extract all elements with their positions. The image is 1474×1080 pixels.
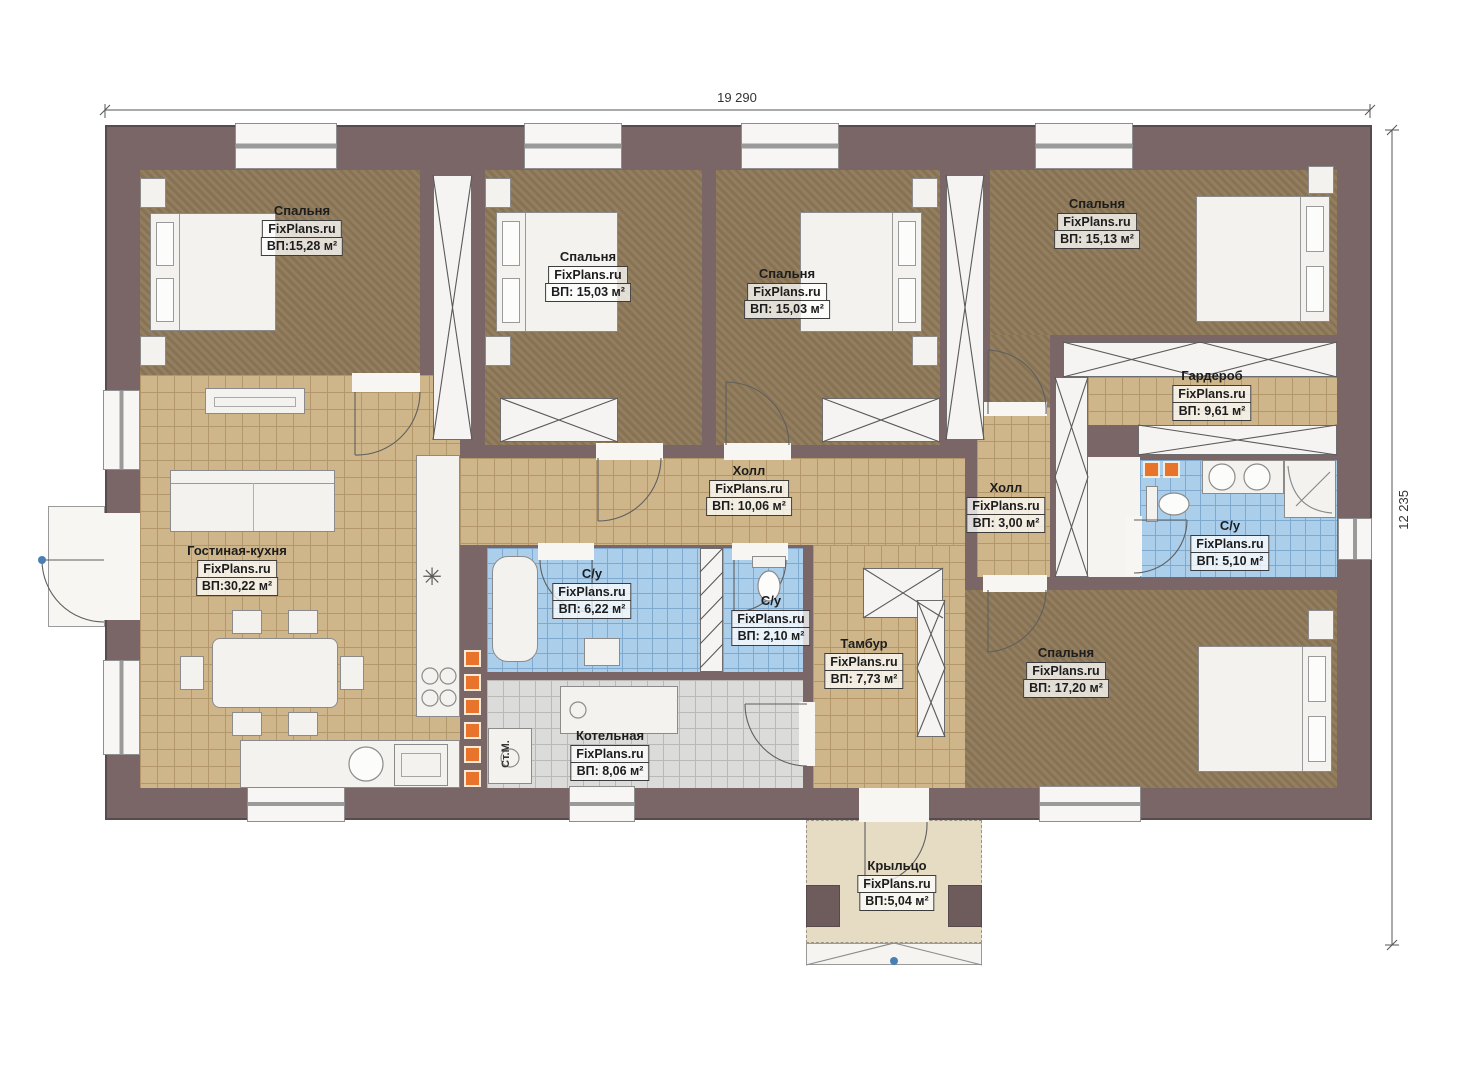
kitchen-stove — [394, 744, 448, 786]
window-top-1 — [235, 123, 337, 169]
watermark: FixPlans.ru — [552, 583, 631, 601]
tv-screen — [214, 397, 296, 406]
pillow — [156, 278, 174, 322]
boiler-room-door-opening — [799, 702, 815, 766]
room-area: ВП: 7,73 м² — [825, 670, 904, 688]
utility-shaft — [700, 548, 723, 672]
room-area: ВП: 17,20 м² — [1023, 679, 1109, 697]
window-left-1 — [103, 390, 140, 470]
nightstand — [140, 336, 166, 366]
room-area: ВП: 8,06 м² — [571, 762, 650, 780]
room-name: Тамбур — [824, 636, 903, 651]
double-sink-counter — [1202, 460, 1284, 494]
porch-post-right — [948, 885, 982, 927]
chair — [232, 610, 262, 634]
bathroom-main-sink — [584, 638, 620, 666]
dining-table — [212, 638, 338, 708]
pillow — [156, 222, 174, 266]
washing-machine-label: Ст.М. — [500, 740, 512, 768]
bedroom-5-door-opening — [983, 575, 1047, 592]
room-label-tambour: Тамбур FixPlans.ru ВП: 7,73 м² — [824, 636, 903, 689]
watermark: FixPlans.ru — [857, 875, 936, 893]
bed-headboard — [1300, 197, 1301, 321]
closet-between-bedroom-3-4 — [946, 175, 984, 440]
window-left-2 — [103, 660, 140, 755]
boiler-unit — [560, 686, 678, 734]
room-area: ВП:15,28 м² — [261, 237, 343, 255]
window-bottom-1 — [247, 786, 345, 822]
window-top-2 — [524, 123, 622, 169]
bedroom-1-door-opening — [352, 373, 420, 392]
nightstand — [1308, 610, 1334, 640]
window-right-1 — [1338, 518, 1372, 560]
room-name: Холл — [706, 463, 792, 478]
toilet-tank-master — [1146, 486, 1158, 522]
watermark: FixPlans.ru — [197, 560, 276, 578]
room-label-bedroom-5: Спальня FixPlans.ru ВП: 17,20 м² — [1023, 645, 1109, 698]
heated-wall-marker — [464, 770, 481, 787]
room-label-bedroom-4: Спальня FixPlans.ru ВП: 15,13 м² — [1054, 196, 1140, 249]
room-name: С/у — [1190, 518, 1269, 533]
room-name: Спальня — [1054, 196, 1140, 211]
sofa-seat-divider — [253, 483, 254, 531]
porch-steps — [806, 943, 982, 965]
bed-bedroom-5 — [1198, 646, 1332, 772]
closet-hall-small — [1055, 377, 1088, 577]
bedroom-3-door-opening — [724, 443, 791, 460]
room-area: ВП:5,04 м² — [859, 892, 934, 910]
watermark: FixPlans.ru — [570, 745, 649, 763]
room-label-bathroom-small: С/у FixPlans.ru ВП: 2,10 м² — [731, 593, 810, 646]
chair — [288, 610, 318, 634]
room-name: Гардероб — [1172, 368, 1251, 383]
bed-headboard — [525, 213, 526, 331]
nightstand — [140, 178, 166, 208]
porch-post-left — [806, 885, 840, 927]
room-name: Спальня — [744, 266, 830, 281]
nightstand — [912, 336, 938, 366]
watermark: FixPlans.ru — [1190, 535, 1269, 553]
room-area: ВП:30,22 м² — [196, 577, 278, 595]
nightstand — [485, 336, 511, 366]
pillow — [502, 278, 520, 322]
room-name: С/у — [552, 566, 631, 581]
room-label-bedroom-2: Спальня FixPlans.ru ВП: 15,03 м² — [545, 249, 631, 302]
room-area: ВП: 2,10 м² — [732, 627, 811, 645]
bed-bedroom-4 — [1196, 196, 1330, 322]
closet-tambour-strip — [917, 600, 945, 737]
side-entry-platform — [48, 506, 105, 627]
bedroom-4-door-opening — [983, 402, 1047, 416]
window-top-4 — [1035, 123, 1133, 169]
chair — [340, 656, 364, 690]
heated-wall-marker — [464, 746, 481, 763]
heated-wall-marker — [464, 698, 481, 715]
room-area: ВП: 3,00 м² — [967, 514, 1046, 532]
room-name: Спальня — [261, 203, 343, 218]
closet-bedroom-3 — [822, 398, 940, 442]
room-area: ВП: 10,06 м² — [706, 497, 792, 515]
pillow — [502, 221, 520, 265]
chair — [180, 656, 204, 690]
room-label-hall-main: Холл FixPlans.ru ВП: 10,06 м² — [706, 463, 792, 516]
floor-plan-canvas: ✳ Ст.М. — [0, 0, 1474, 1080]
room-label-living-kitchen: Гостиная-кухня FixPlans.ru ВП:30,22 м² — [187, 543, 287, 596]
room-label-bedroom-3: Спальня FixPlans.ru ВП: 15,03 м² — [744, 266, 830, 319]
watermark: FixPlans.ru — [731, 610, 810, 628]
room-label-boiler-room: Котельная FixPlans.ru ВП: 8,06 м² — [570, 728, 649, 781]
watermark: FixPlans.ru — [1026, 662, 1105, 680]
room-name: Котельная — [570, 728, 649, 743]
watermark: FixPlans.ru — [966, 497, 1045, 515]
closet-bedroom-2 — [500, 398, 618, 442]
window-bottom-2 — [569, 786, 635, 822]
room-name: С/у — [731, 593, 810, 608]
watermark: FixPlans.ru — [1172, 385, 1251, 403]
pillow — [898, 278, 916, 322]
nightstand — [1308, 166, 1334, 194]
bed-headboard — [1302, 647, 1303, 771]
heated-wall-marker — [464, 674, 481, 691]
room-area: ВП: 15,13 м² — [1054, 230, 1140, 248]
sofa — [170, 470, 335, 532]
toilet-tank-small — [752, 556, 786, 568]
room-name: Холл — [966, 480, 1045, 495]
room-label-bathroom-main: С/у FixPlans.ru ВП: 6,22 м² — [552, 566, 631, 619]
bedroom-4-entry-nook-floor — [990, 335, 1050, 407]
fridge-snowflake-icon: ✳ — [422, 566, 442, 590]
room-name: Спальня — [545, 249, 631, 264]
room-area: ВП: 6,22 м² — [553, 600, 632, 618]
bathroom-main-door-opening — [538, 543, 594, 560]
tv-stand — [205, 388, 305, 414]
wardrobe-bottom-cabinets — [1138, 425, 1337, 455]
room-area: ВП: 15,03 м² — [545, 283, 631, 301]
bathroom-master-door-opening — [1126, 516, 1142, 576]
nightstand — [485, 178, 511, 208]
corner-shower — [1284, 460, 1336, 518]
closet-between-bedroom-1-2 — [433, 175, 472, 440]
bathtub — [492, 556, 538, 662]
room-label-wardrobe: Гардероб FixPlans.ru ВП: 9,61 м² — [1172, 368, 1251, 421]
chair — [232, 712, 262, 736]
room-area: ВП: 9,61 м² — [1173, 402, 1252, 420]
chair — [288, 712, 318, 736]
room-name: Спальня — [1023, 645, 1109, 660]
nightstand — [912, 178, 938, 208]
room-label-porch: Крыльцо FixPlans.ru ВП:5,04 м² — [857, 858, 936, 911]
watermark: FixPlans.ru — [548, 266, 627, 284]
watermark: FixPlans.ru — [747, 283, 826, 301]
window-bottom-3 — [1039, 786, 1141, 822]
heated-wall-marker — [464, 650, 481, 667]
room-label-bedroom-1: Спальня FixPlans.ru ВП:15,28 м² — [261, 203, 343, 256]
bedroom-2-door-opening — [596, 443, 663, 460]
side-door-opening — [103, 513, 140, 620]
heated-wall-marker — [464, 722, 481, 739]
room-name: Крыльцо — [857, 858, 936, 873]
dimension-width-label: 19 290 — [687, 90, 787, 105]
pillow — [1308, 716, 1326, 763]
room-label-bathroom-master: С/у FixPlans.ru ВП: 5,10 м² — [1190, 518, 1269, 571]
bed-bedroom-1 — [150, 213, 276, 331]
heated-wall-marker — [1163, 461, 1180, 478]
bed-headboard — [892, 213, 893, 331]
room-name: Гостиная-кухня — [187, 543, 287, 558]
pillow — [1308, 656, 1326, 703]
heated-wall-marker — [1143, 461, 1160, 478]
bed-headboard — [179, 214, 180, 330]
watermark: FixPlans.ru — [262, 220, 341, 238]
watermark: FixPlans.ru — [824, 653, 903, 671]
pillow — [898, 221, 916, 265]
pillow — [1306, 266, 1324, 313]
room-area: ВП: 5,10 м² — [1191, 552, 1270, 570]
watermark: FixPlans.ru — [709, 480, 788, 498]
watermark: FixPlans.ru — [1057, 213, 1136, 231]
stove-top — [401, 753, 441, 777]
room-label-hall-small: Холл FixPlans.ru ВП: 3,00 м² — [966, 480, 1045, 533]
room-area: ВП: 15,03 м² — [744, 300, 830, 318]
pillow — [1306, 206, 1324, 253]
front-door-opening — [859, 788, 929, 822]
window-top-3 — [741, 123, 839, 169]
dimension-height-label: 12 235 — [1396, 490, 1411, 530]
